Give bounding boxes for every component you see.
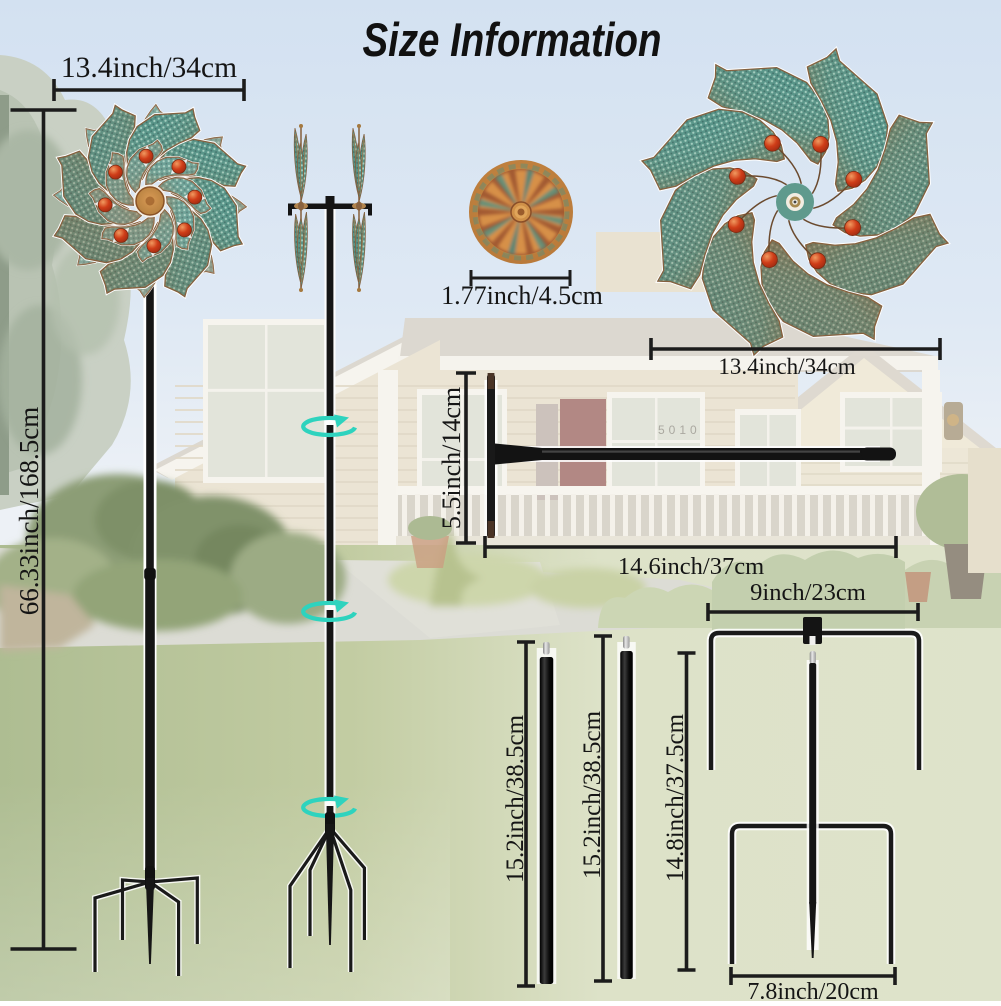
svg-text:1.77inch/4.5cm: 1.77inch/4.5cm xyxy=(441,281,603,310)
svg-text:Size Information: Size Information xyxy=(363,13,662,66)
svg-text:14.6inch/37cm: 14.6inch/37cm xyxy=(618,553,764,580)
svg-text:13.4inch/34cm: 13.4inch/34cm xyxy=(61,52,237,84)
svg-text:66.33inch/168.5cm: 66.33inch/168.5cm xyxy=(14,407,44,615)
svg-text:7.8inch/20cm: 7.8inch/20cm xyxy=(747,979,879,1001)
svg-text:15.2inch/38.5cm: 15.2inch/38.5cm xyxy=(502,714,529,883)
svg-text:9inch/23cm: 9inch/23cm xyxy=(750,579,866,606)
svg-text:14.8inch/37.5cm: 14.8inch/37.5cm xyxy=(662,713,689,882)
svg-text:13.4inch/34cm: 13.4inch/34cm xyxy=(718,354,855,379)
svg-text:5010: 5010 xyxy=(658,423,701,437)
svg-text:5.5inch/14cm: 5.5inch/14cm xyxy=(437,387,466,529)
svg-text:15.2inch/38.5cm: 15.2inch/38.5cm xyxy=(579,710,606,879)
